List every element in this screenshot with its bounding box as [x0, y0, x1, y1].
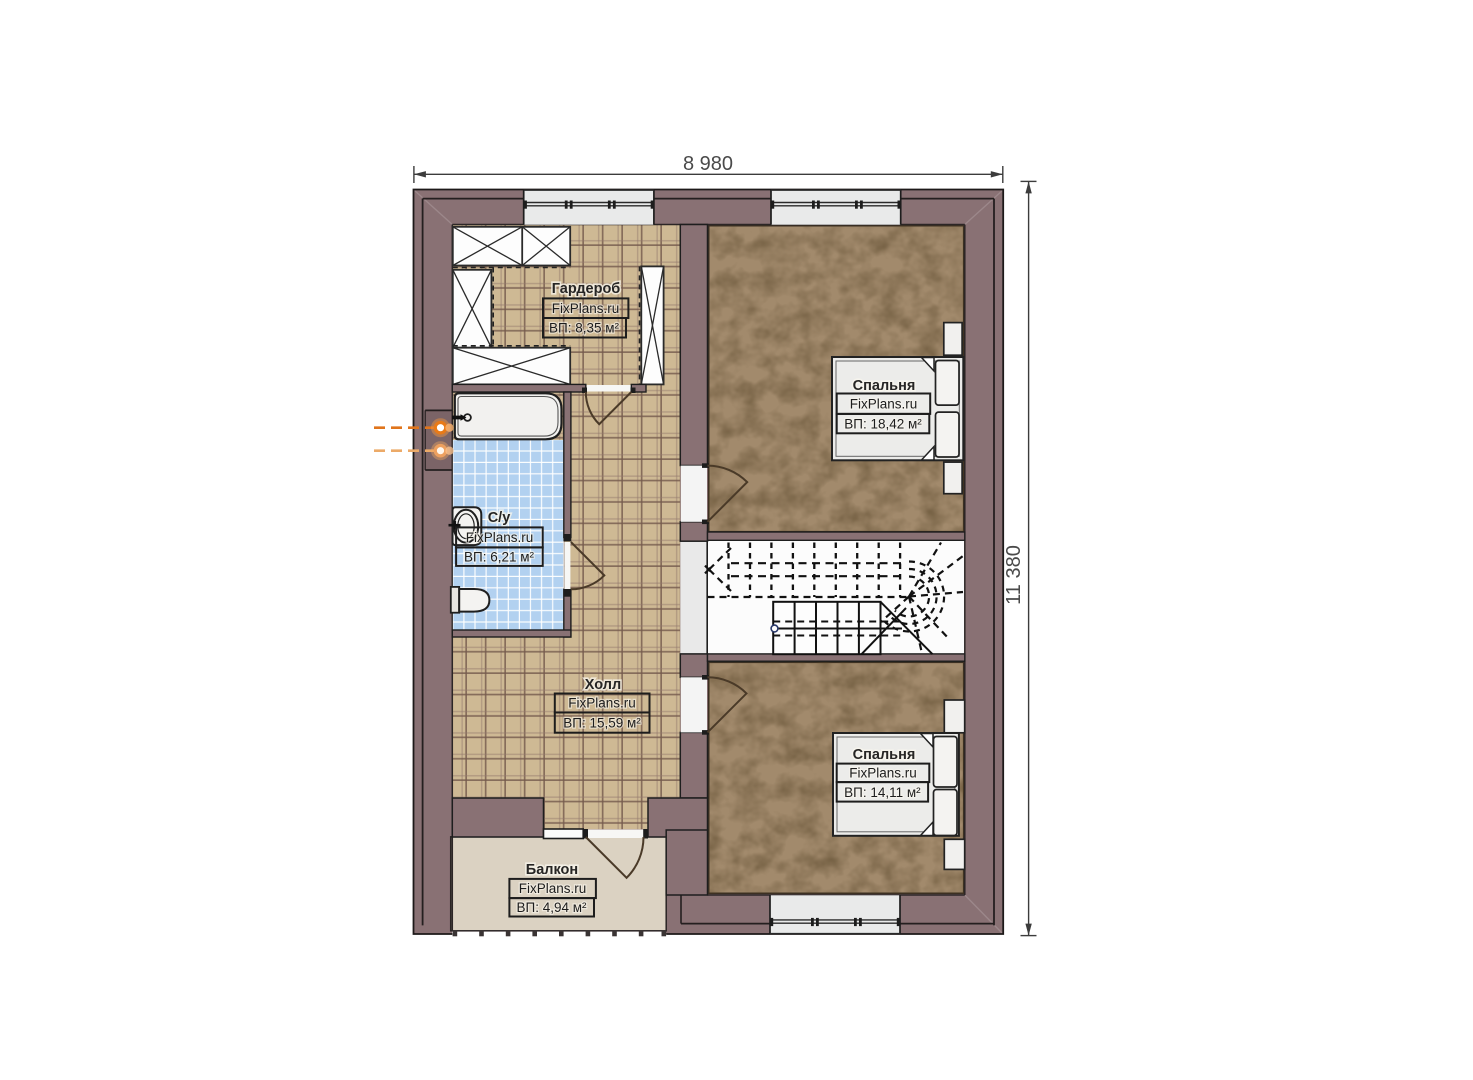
- svg-text:FixPlans.ru: FixPlans.ru: [552, 301, 620, 316]
- svg-text:ВП: 14,11 м²: ВП: 14,11 м²: [844, 785, 921, 800]
- svg-text:Спальня: Спальня: [853, 747, 916, 763]
- svg-text:FixPlans.ru: FixPlans.ru: [466, 530, 534, 545]
- svg-text:Гардероб: Гардероб: [552, 281, 621, 297]
- svg-text:С/у: С/у: [488, 510, 511, 526]
- svg-text:ВП: 18,42 м²: ВП: 18,42 м²: [844, 416, 922, 431]
- svg-text:Холл: Холл: [585, 677, 621, 693]
- svg-text:Балкон: Балкон: [526, 862, 578, 878]
- svg-text:ВП: 4,94 м²: ВП: 4,94 м²: [516, 900, 587, 915]
- svg-text:FixPlans.ru: FixPlans.ru: [568, 696, 636, 711]
- svg-text:FixPlans.ru: FixPlans.ru: [850, 396, 918, 411]
- svg-text:ВП: 6,21 м²: ВП: 6,21 м²: [464, 549, 535, 564]
- svg-text:ВП: 15,59 м²: ВП: 15,59 м²: [563, 715, 641, 730]
- svg-text:ВП: 8,35 м²: ВП: 8,35 м²: [549, 321, 620, 336]
- svg-text:FixPlans.ru: FixPlans.ru: [849, 766, 917, 781]
- svg-text:FixPlans.ru: FixPlans.ru: [519, 881, 587, 896]
- svg-text:8 980: 8 980: [683, 153, 733, 175]
- svg-text:11 380: 11 380: [1003, 545, 1025, 605]
- svg-text:Спальня: Спальня: [853, 378, 916, 394]
